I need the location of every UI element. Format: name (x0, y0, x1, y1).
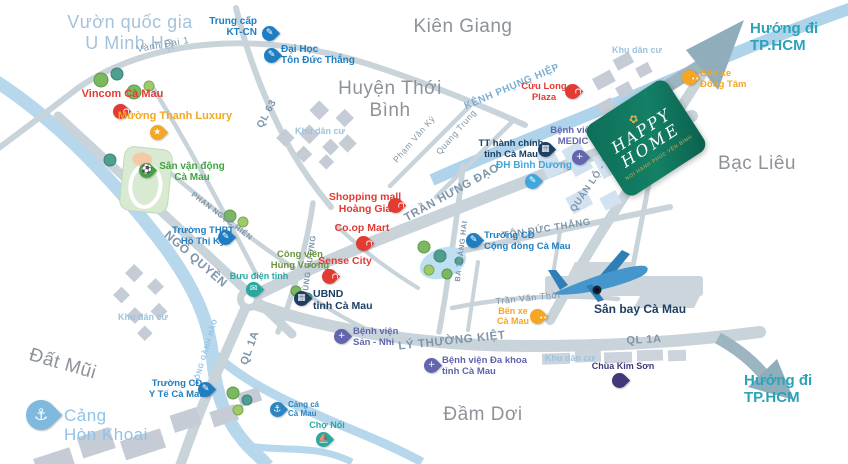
ben-xe-dong-tam-label: Bến xe Đồng Tâm (700, 69, 755, 90)
vincom-label: Vincom Cà Mau (75, 88, 170, 100)
cang-hon-khoai-label: Cảng Hòn Khoai (64, 406, 204, 444)
region-label-bac-lieu: Bạc Liêu (712, 153, 802, 175)
cd-cong-dong-label: Trường CĐ Cộng đồng Cà Mau (484, 231, 574, 252)
cuu-long-plaza-label: Cửu Long Plaza (518, 82, 570, 103)
residential-label: Khu dân cư (295, 126, 345, 136)
sense-city-label: Sense City (316, 256, 374, 268)
building-icon: ▦ (297, 294, 306, 303)
san-bay-label: Sân bay Cà Mau (594, 303, 704, 316)
envelope-icon: ✉ (250, 285, 258, 294)
anchor-icon: ⚓ (34, 407, 48, 423)
trung-cap-kt-cn-label: Trung cấp KT-CN (195, 16, 257, 38)
coop-mart-label: Co.op Mart (330, 223, 394, 235)
buu-dien-tinh-label: Bưu điện tỉnh (228, 271, 290, 281)
graduation-cap-icon: ✎ (470, 236, 478, 245)
region-label-kien-giang: Kiên Giang (408, 16, 518, 38)
bv-san-nhi-label: Bệnh viện Sản - Nhi (353, 327, 413, 348)
hospital-cross-icon: + (428, 361, 436, 370)
hospital-cross-icon: + (338, 332, 346, 341)
dh-binh-duong-label: ĐH Bình Dương (492, 160, 576, 171)
chua-kim-son-label: Chùa Kim Sơn (585, 361, 661, 371)
san-van-dong-label: Sân vận động Cà Mau (153, 161, 231, 183)
graduation-cap-icon: ✎ (222, 233, 230, 242)
residential-label: Khu dân cư (612, 45, 662, 55)
residential-label: Khu dân cư (118, 312, 168, 322)
region-label-u-minh-ha: Vườn quốc gia U Minh Hạ (55, 12, 205, 53)
direction-label-hcm-top: Hướng đi TP.HCM (750, 20, 818, 55)
hospital-cross-icon: + (576, 153, 584, 162)
anchor-icon: ⚓ (273, 405, 281, 414)
cho-noi-label: Chợ Nổi (304, 420, 350, 430)
muong-thanh-label: Mường Thanh Luxury (115, 110, 235, 122)
star-icon: ★ (153, 128, 161, 137)
ubnd-label: UBND tỉnh Cà Mau (313, 289, 383, 313)
bv-da-khoa-label: Bệnh viện Đa khoa tỉnh Cà Mau (442, 356, 552, 377)
graduation-cap-icon: ✎ (529, 177, 537, 186)
direction-label-hcm-bottom: Hướng đi TP.HCM (744, 372, 812, 407)
graduation-cap-icon: ✎ (268, 51, 276, 60)
cang-ca-label: Cảng cá Cà Mau (288, 401, 338, 419)
region-label-dam-doi: Đầm Dơi (438, 404, 528, 426)
road-label-ql-1a-east: QL 1A (626, 333, 662, 347)
ca-mau-area-map: Vườn quốc gia U Minh Hạ Kiên Giang Huyện… (0, 0, 848, 464)
boat-icon: ⛵ (318, 435, 329, 444)
graduation-cap-icon: ✎ (266, 29, 274, 38)
region-label-huyen-thoi-binh: Huyện Thới Bình (325, 78, 455, 122)
soccer-ball-icon: ⚽ (141, 166, 152, 175)
graduation-cap-icon: ✎ (202, 385, 210, 394)
dh-ton-duc-thang-label: Đại Học Tôn Đức Thắng (281, 44, 361, 66)
